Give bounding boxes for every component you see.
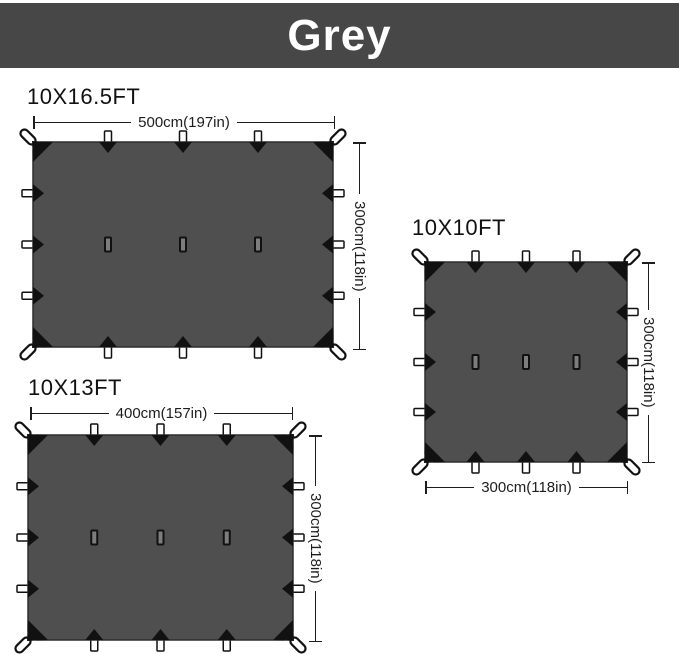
- color-banner-label: Grey: [287, 11, 391, 61]
- dimension-height-10x10ft: 300cm(118in): [640, 262, 657, 463]
- dimension-line: [648, 264, 650, 311]
- tarp-title-10x13ft: 10X13FT: [28, 375, 122, 401]
- dimension-line: [35, 122, 132, 124]
- tarp-graphic-10x13ft: [14, 421, 307, 654]
- tarp-graphic-10x10ft: [411, 248, 641, 476]
- tarp-title-10x16-5ft: 10X16.5FT: [27, 84, 140, 110]
- dimension-line: [237, 122, 334, 124]
- dimension-height-10x16-5ft: 300cm(118in): [351, 142, 368, 350]
- color-banner: Grey: [0, 3, 679, 68]
- dimension-height-label: 300cm(118in): [307, 486, 324, 591]
- dimension-height-10x13ft: 300cm(118in): [307, 435, 324, 642]
- dimension-end-tick: [627, 481, 629, 494]
- dimension-end-tick: [292, 407, 294, 420]
- dimension-line: [315, 591, 317, 641]
- dimension-height-label: 300cm(118in): [640, 310, 657, 415]
- dimension-end-tick: [353, 349, 366, 351]
- dimension-width-10x13ft: 400cm(157in): [30, 405, 293, 422]
- dimension-line: [359, 144, 361, 194]
- dimension-width-10x10ft: 300cm(118in): [425, 479, 628, 496]
- dimension-line: [427, 487, 475, 489]
- tarp-graphic-10x16-5ft: [19, 128, 347, 361]
- product-spec-image: Grey 10X16.5FT 500cm(197in) 300cm(118in)…: [0, 0, 679, 654]
- dimension-width-label: 300cm(118in): [474, 479, 579, 496]
- dimension-line: [315, 437, 317, 487]
- dimension-line: [32, 413, 109, 415]
- dimension-line: [648, 415, 650, 462]
- dimension-end-tick: [309, 641, 322, 643]
- tarp-title-10x10ft: 10X10FT: [412, 215, 506, 241]
- dimension-line: [579, 487, 627, 489]
- dimension-width-label: 400cm(157in): [109, 405, 215, 422]
- dimension-line: [359, 298, 361, 348]
- dimension-height-label: 300cm(118in): [351, 194, 368, 299]
- dimension-end-tick: [642, 462, 655, 464]
- dimension-line: [214, 413, 291, 415]
